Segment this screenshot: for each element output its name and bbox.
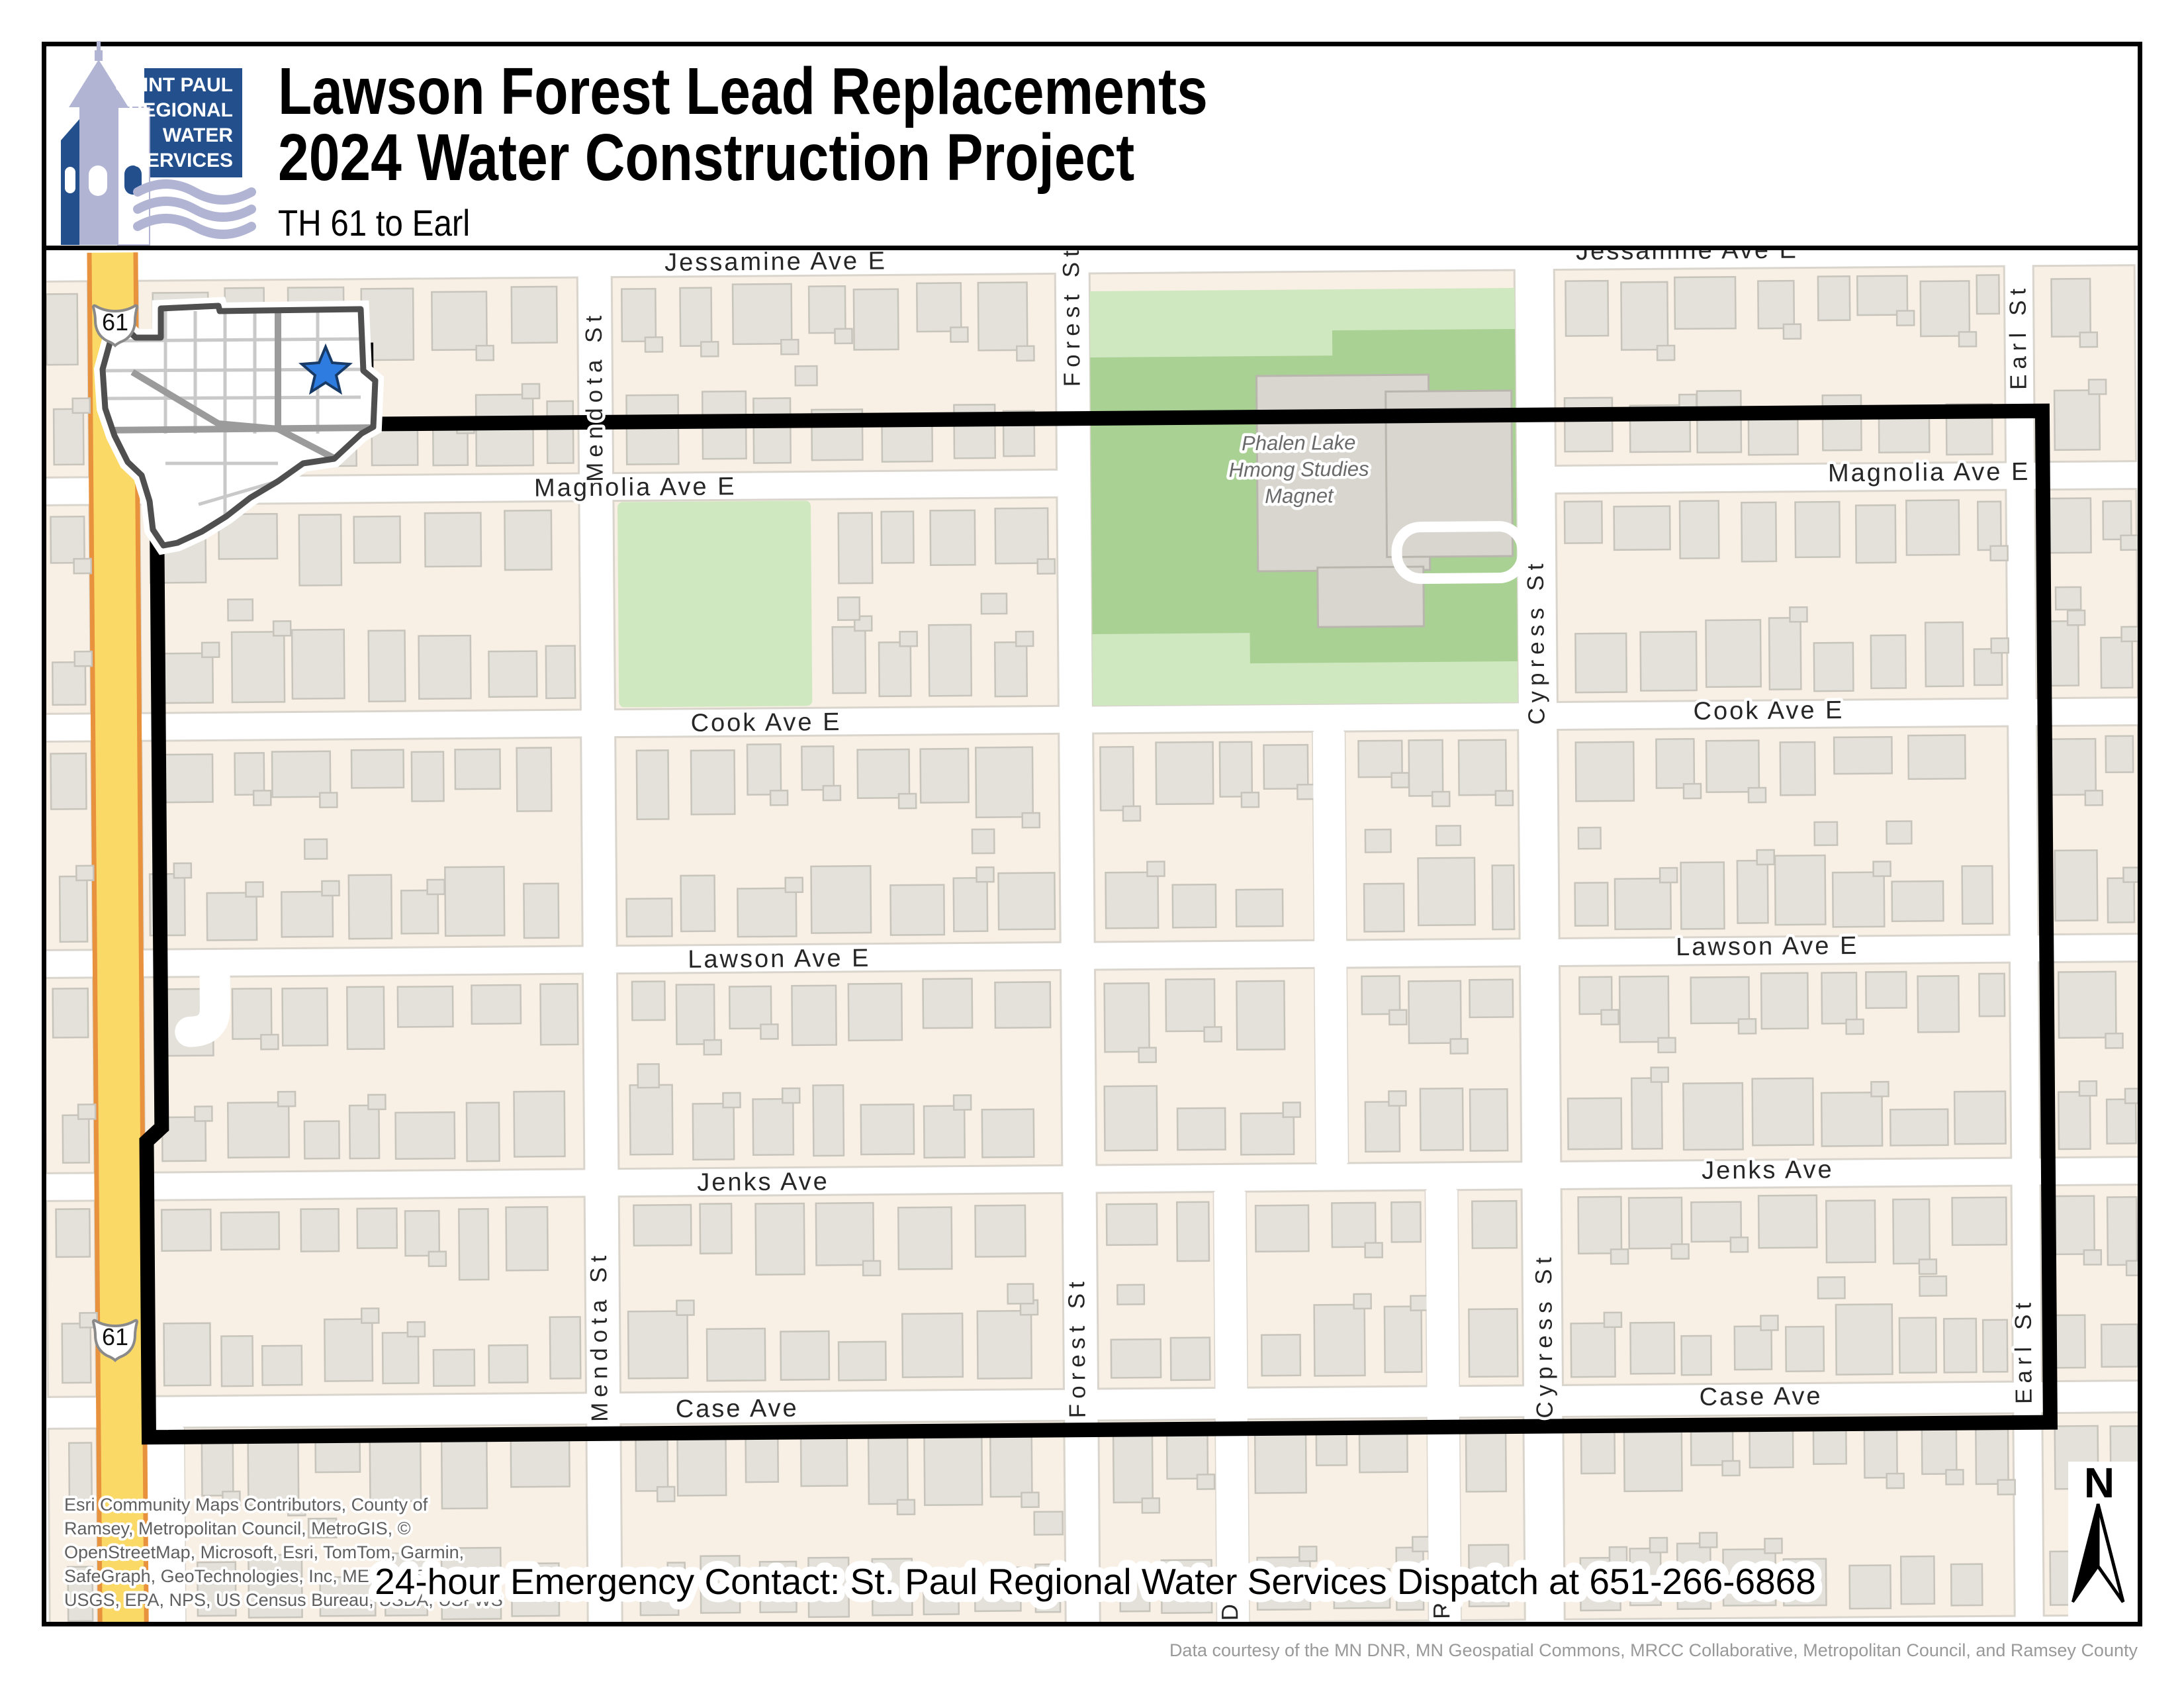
building xyxy=(707,1329,765,1381)
building xyxy=(627,898,672,937)
building xyxy=(2085,790,2103,805)
building xyxy=(2106,736,2134,773)
building xyxy=(2107,1197,2137,1265)
building xyxy=(1871,635,1906,688)
building xyxy=(261,1035,278,1049)
building xyxy=(278,1092,295,1106)
building xyxy=(1565,281,1608,336)
building xyxy=(1261,1335,1300,1376)
sprws-logo: SAINT PAUL REGIONAL WATER SERVICES xyxy=(61,41,251,245)
building xyxy=(517,747,552,811)
building xyxy=(833,627,866,693)
building xyxy=(1220,742,1252,797)
building xyxy=(1786,1327,1824,1372)
building xyxy=(1236,890,1283,927)
building xyxy=(917,283,961,332)
building xyxy=(2079,1081,2097,1096)
building xyxy=(1575,882,1608,925)
building xyxy=(511,1438,570,1487)
building xyxy=(1105,872,1158,929)
building xyxy=(756,1203,805,1275)
building xyxy=(1922,1425,1957,1474)
building xyxy=(455,749,500,789)
building xyxy=(635,1436,668,1491)
building xyxy=(1893,1199,1930,1264)
data-courtesy-text: Data courtesy of the MN DNR, MN Geospati… xyxy=(1169,1640,2138,1660)
building xyxy=(848,984,902,1041)
building xyxy=(52,662,85,705)
building xyxy=(786,878,803,892)
building xyxy=(1856,505,1895,563)
building xyxy=(1365,1102,1400,1152)
building xyxy=(1619,976,1668,1042)
building xyxy=(1263,745,1308,789)
building xyxy=(1887,1474,1904,1488)
building xyxy=(1205,1027,1222,1041)
attribution-line1: Esri Community Maps Contributors, County… xyxy=(64,1495,428,1515)
building xyxy=(1737,861,1768,923)
building xyxy=(1197,1474,1214,1489)
building xyxy=(405,1211,439,1256)
building xyxy=(2101,637,2132,688)
building xyxy=(1683,1083,1743,1150)
building xyxy=(863,1261,880,1276)
building xyxy=(1660,868,1677,882)
building xyxy=(489,1345,528,1383)
building xyxy=(899,794,916,808)
building xyxy=(1836,1304,1893,1374)
building xyxy=(978,282,1028,350)
water-tower-icon xyxy=(61,41,150,245)
street-label-cook-w: Cook Ave E xyxy=(690,708,841,737)
building xyxy=(811,866,871,933)
project-map-page: Jessamine Ave E Jessamine Ave E Magnolia… xyxy=(0,0,2184,1688)
building xyxy=(1833,872,1884,927)
building xyxy=(809,286,845,333)
building xyxy=(2107,1100,2136,1144)
north-arrow: N xyxy=(2068,1459,2140,1623)
building xyxy=(1919,1259,1936,1274)
building xyxy=(2058,972,2116,1038)
building xyxy=(1359,1431,1408,1472)
building xyxy=(898,1207,952,1270)
building xyxy=(1385,1306,1422,1372)
building xyxy=(861,1104,914,1154)
building xyxy=(1283,1102,1300,1117)
building xyxy=(351,750,404,788)
building xyxy=(1998,1480,2015,1495)
building xyxy=(816,1203,874,1265)
building xyxy=(1565,398,1613,452)
building xyxy=(1691,977,1749,1023)
building xyxy=(747,744,781,794)
building xyxy=(1919,1276,1946,1296)
building xyxy=(1758,1196,1817,1248)
building xyxy=(1571,1323,1615,1377)
building xyxy=(1946,1470,1963,1484)
school-label-line3: Magnet xyxy=(1265,484,1334,508)
building xyxy=(1918,976,1959,1032)
water-waves-icon xyxy=(138,184,251,234)
building xyxy=(281,892,333,937)
building xyxy=(1962,866,1993,924)
building xyxy=(1621,282,1668,350)
building xyxy=(1358,741,1402,777)
building xyxy=(1906,500,1959,555)
building xyxy=(1575,633,1627,692)
building xyxy=(433,1350,475,1386)
building xyxy=(1365,1243,1383,1257)
building xyxy=(746,1432,778,1482)
street-label-mendota-s: Mendota St xyxy=(586,1250,613,1422)
building xyxy=(322,881,339,896)
building xyxy=(412,752,444,802)
building xyxy=(1156,742,1213,804)
building xyxy=(401,890,438,933)
building xyxy=(1604,1313,1621,1327)
building xyxy=(626,395,678,465)
building xyxy=(1757,850,1774,865)
building xyxy=(433,429,468,465)
building xyxy=(1362,976,1400,1014)
building xyxy=(292,630,344,699)
building xyxy=(1979,974,2005,1017)
building xyxy=(2084,1250,2101,1264)
building xyxy=(838,597,860,620)
building xyxy=(1680,501,1719,559)
building xyxy=(1846,1019,1864,1034)
building xyxy=(982,1109,1034,1158)
building xyxy=(1173,884,1216,927)
building xyxy=(1983,1320,2007,1372)
building xyxy=(770,790,788,805)
building xyxy=(801,746,834,790)
building xyxy=(235,753,265,794)
building xyxy=(419,635,471,699)
building xyxy=(514,1092,565,1157)
building xyxy=(202,1439,234,1495)
building xyxy=(753,1099,794,1155)
building xyxy=(1814,643,1854,691)
building xyxy=(1684,784,1701,798)
building xyxy=(78,1104,95,1119)
building xyxy=(1722,1461,1739,1476)
building xyxy=(1775,855,1825,925)
building xyxy=(921,749,969,803)
building xyxy=(354,516,400,563)
building xyxy=(976,867,993,882)
building xyxy=(1579,977,1612,1014)
building xyxy=(704,1040,721,1055)
street-label-mendota-n: Mendota St xyxy=(581,310,608,482)
building xyxy=(1420,1088,1463,1150)
building xyxy=(53,988,89,1037)
building xyxy=(1365,829,1391,853)
building xyxy=(262,1346,302,1385)
building xyxy=(1901,1556,1934,1604)
building xyxy=(369,630,406,701)
building xyxy=(1769,618,1801,689)
building xyxy=(1472,1201,1517,1248)
building xyxy=(445,867,504,935)
building xyxy=(897,1500,915,1515)
building xyxy=(1470,1089,1508,1150)
building xyxy=(1629,1197,1682,1248)
building xyxy=(1123,806,1140,821)
building xyxy=(2080,332,2097,347)
building xyxy=(2121,627,2138,641)
building xyxy=(1741,502,1776,561)
building xyxy=(1818,1277,1845,1298)
building xyxy=(1944,1319,1976,1373)
building xyxy=(324,1319,373,1382)
street-label-jessamine-w: Jessamine Ave E xyxy=(664,247,887,277)
building xyxy=(691,750,735,814)
building xyxy=(396,1112,455,1159)
building xyxy=(1410,1295,1428,1310)
building xyxy=(368,1095,385,1109)
street-label-cypress-s: Cypress St xyxy=(1531,1252,1558,1418)
building xyxy=(923,978,972,1028)
building xyxy=(801,1432,847,1486)
building xyxy=(1459,740,1506,796)
building xyxy=(998,872,1055,929)
building xyxy=(1749,788,1766,802)
building xyxy=(1496,791,1513,806)
building xyxy=(1466,1429,1506,1491)
building xyxy=(1681,862,1725,929)
building xyxy=(347,987,384,1049)
building xyxy=(408,1322,425,1336)
building xyxy=(246,882,263,896)
building xyxy=(63,1115,89,1162)
building xyxy=(522,384,539,399)
building xyxy=(1016,632,1033,646)
street-label-jessamine-e: Jessamine Ave E xyxy=(1576,236,1798,266)
building xyxy=(2054,390,2100,449)
building xyxy=(1630,1323,1674,1374)
building xyxy=(488,651,537,697)
building xyxy=(1177,1202,1209,1261)
building xyxy=(1892,881,1944,921)
building xyxy=(1469,980,1513,1017)
building xyxy=(1697,391,1741,452)
building xyxy=(929,625,971,696)
building xyxy=(1650,1538,1667,1552)
building xyxy=(523,884,559,938)
building xyxy=(879,642,911,696)
street-label-magnolia-e: Magnolia Ave E xyxy=(1828,458,2030,487)
building xyxy=(981,594,1007,614)
building xyxy=(990,1434,1032,1497)
building xyxy=(273,621,291,635)
page-title-line1: Lawson Forest Lead Replacements xyxy=(278,54,1208,128)
building xyxy=(1899,1318,1936,1373)
building xyxy=(1674,277,1735,329)
building xyxy=(1760,1315,1778,1330)
building xyxy=(1857,276,1907,315)
building xyxy=(1492,865,1514,929)
building xyxy=(1578,827,1601,849)
building xyxy=(1706,741,1759,792)
building xyxy=(1436,825,1461,845)
building xyxy=(76,866,93,880)
building xyxy=(1691,1427,1733,1466)
building xyxy=(1602,1010,1619,1025)
school-label-line1: Phalen Lake xyxy=(1242,431,1356,455)
building xyxy=(1105,1086,1158,1150)
building xyxy=(1886,821,1911,843)
building xyxy=(1624,1425,1682,1491)
street-label-magnolia-w: Magnolia Ave E xyxy=(534,473,737,502)
building xyxy=(1890,1109,1948,1146)
building xyxy=(506,1207,548,1270)
building xyxy=(633,1205,691,1246)
page-subtitle: TH 61 to Earl xyxy=(278,203,470,244)
building xyxy=(680,288,711,346)
building xyxy=(2055,850,2098,920)
building xyxy=(1111,1339,1161,1378)
building xyxy=(1332,1203,1375,1247)
north-arrow-label: N xyxy=(2084,1459,2115,1507)
building xyxy=(1021,1493,1038,1507)
building xyxy=(858,749,910,798)
building xyxy=(924,1105,965,1157)
building xyxy=(304,839,327,859)
building xyxy=(1568,1098,1621,1149)
building xyxy=(1764,1538,1782,1553)
building xyxy=(1412,1537,1430,1552)
building xyxy=(1469,1309,1518,1377)
building xyxy=(1641,632,1697,690)
building xyxy=(638,1064,659,1088)
building xyxy=(954,878,987,931)
building xyxy=(425,513,481,567)
building xyxy=(792,986,836,1045)
building xyxy=(1850,1566,1891,1609)
building xyxy=(1105,983,1150,1052)
building xyxy=(370,1439,421,1501)
building xyxy=(780,1331,829,1380)
building xyxy=(978,1311,1032,1379)
building xyxy=(1107,1204,1158,1245)
building xyxy=(1921,281,1970,336)
building xyxy=(1023,813,1040,827)
building xyxy=(1682,1336,1711,1375)
logo-line4: SERVICES xyxy=(133,150,233,171)
building xyxy=(1761,973,1808,1029)
building xyxy=(428,880,445,894)
building xyxy=(1954,1092,2005,1144)
building xyxy=(1392,773,1409,788)
building xyxy=(1364,884,1404,932)
building xyxy=(1034,1512,1063,1535)
building xyxy=(1952,1197,2007,1245)
building xyxy=(60,876,87,942)
building xyxy=(1017,346,1034,361)
building xyxy=(1451,1039,1468,1053)
building xyxy=(1314,1305,1365,1376)
building xyxy=(976,747,1033,818)
building xyxy=(1784,324,1801,339)
building xyxy=(207,893,257,941)
building xyxy=(1976,1427,2008,1484)
building xyxy=(1991,638,2009,653)
building xyxy=(1706,620,1760,686)
building xyxy=(301,1209,340,1251)
building xyxy=(2052,1196,2095,1254)
building xyxy=(693,1103,734,1160)
building xyxy=(1834,737,1892,774)
building xyxy=(1610,1547,1627,1562)
building xyxy=(813,1085,844,1156)
building xyxy=(1821,972,1856,1023)
park-green xyxy=(617,500,812,707)
building xyxy=(228,599,253,620)
building xyxy=(657,1487,674,1501)
building xyxy=(467,1103,500,1162)
building xyxy=(1790,607,1807,622)
building xyxy=(839,1342,886,1381)
building xyxy=(632,981,665,1020)
building xyxy=(471,985,521,1024)
building xyxy=(1100,747,1134,810)
building xyxy=(56,1209,89,1257)
building xyxy=(349,875,392,939)
building xyxy=(429,1252,446,1266)
building xyxy=(1255,1205,1308,1252)
school-label-line2: Hmong Studies xyxy=(1228,457,1369,482)
building xyxy=(1038,559,1055,574)
building xyxy=(2068,610,2085,625)
building xyxy=(1951,1564,1982,1606)
building xyxy=(995,508,1048,564)
building xyxy=(2058,1092,2090,1149)
building xyxy=(621,289,656,342)
building xyxy=(924,1436,982,1505)
building xyxy=(1749,417,1798,455)
building xyxy=(1147,862,1164,876)
building xyxy=(1758,281,1794,328)
building xyxy=(1165,979,1214,1031)
building xyxy=(459,1209,488,1280)
building xyxy=(1113,1434,1153,1503)
logo-line1: SAINT PAUL xyxy=(115,74,233,96)
building xyxy=(2044,498,2091,553)
building xyxy=(645,337,662,352)
building xyxy=(1874,861,1891,876)
building xyxy=(1974,649,2002,685)
building xyxy=(1241,1113,1294,1155)
header: SAINT PAUL REGIONAL WATER SERVICES Lawso… xyxy=(61,41,1208,245)
building xyxy=(1908,735,1965,778)
building xyxy=(2120,536,2138,550)
building xyxy=(1389,1010,1406,1025)
street-label-jenks-e: Jenks Ave xyxy=(1702,1156,1834,1185)
building xyxy=(320,792,337,807)
building xyxy=(1815,822,1838,845)
building xyxy=(1177,1108,1226,1150)
building xyxy=(1871,1082,1888,1096)
building xyxy=(195,1106,212,1121)
building xyxy=(1897,310,1914,325)
building xyxy=(504,510,551,570)
building xyxy=(74,559,91,573)
building xyxy=(174,863,191,878)
street-label-cook-e: Cook Ave E xyxy=(1693,696,1844,726)
building xyxy=(1565,501,1602,543)
building xyxy=(2089,379,2106,394)
